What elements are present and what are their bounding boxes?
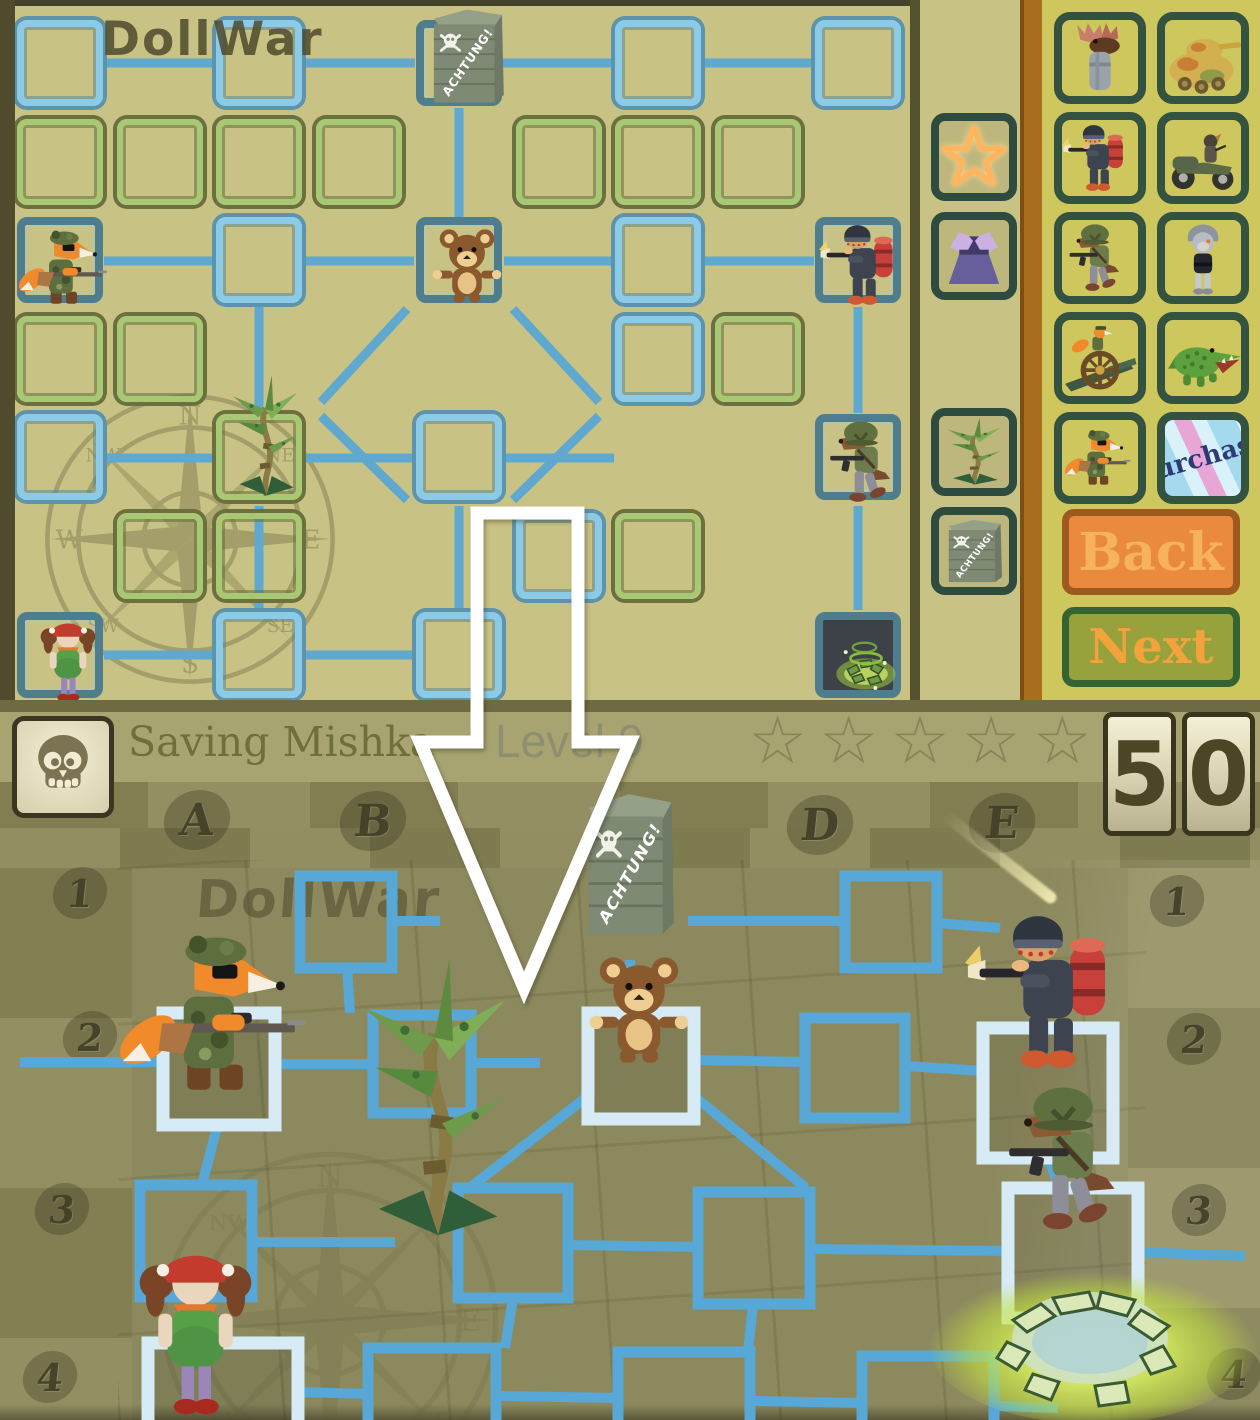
empty-star-icon: ☆ xyxy=(890,702,961,779)
board-fox-sniper[interactable] xyxy=(112,912,327,1117)
level-indicator: Level 0 xyxy=(495,714,643,768)
board-dog-soldier[interactable] xyxy=(993,1070,1155,1248)
board-flamethrower-soldier[interactable] xyxy=(965,893,1140,1091)
skull-icon-card xyxy=(12,716,114,818)
board-girl-doll[interactable] xyxy=(118,1232,273,1420)
score-digit-card: 0 xyxy=(1182,712,1255,836)
empty-star-icon: ☆ xyxy=(962,702,1033,779)
score-digit-card: 5 xyxy=(1103,712,1176,836)
board-achtung-crate[interactable]: ACHTUNG! xyxy=(573,783,685,945)
empty-star-icon: ☆ xyxy=(819,702,890,779)
empty-star-icon: ☆ xyxy=(1033,702,1104,779)
board-teddy-bear[interactable] xyxy=(583,950,695,1070)
star-rating-row: ☆☆☆☆☆ xyxy=(748,702,1104,779)
board-plant-obstacle[interactable] xyxy=(342,952,527,1250)
empty-star-icon: ☆ xyxy=(748,702,819,779)
board-portal-glow[interactable] xyxy=(925,1258,1260,1420)
mission-title: Saving Mishka xyxy=(128,718,434,766)
dollwar-game-screen: NE SW NWNE SWSE ACHTUNG! DollWar ACHTUNG… xyxy=(0,0,1260,1420)
